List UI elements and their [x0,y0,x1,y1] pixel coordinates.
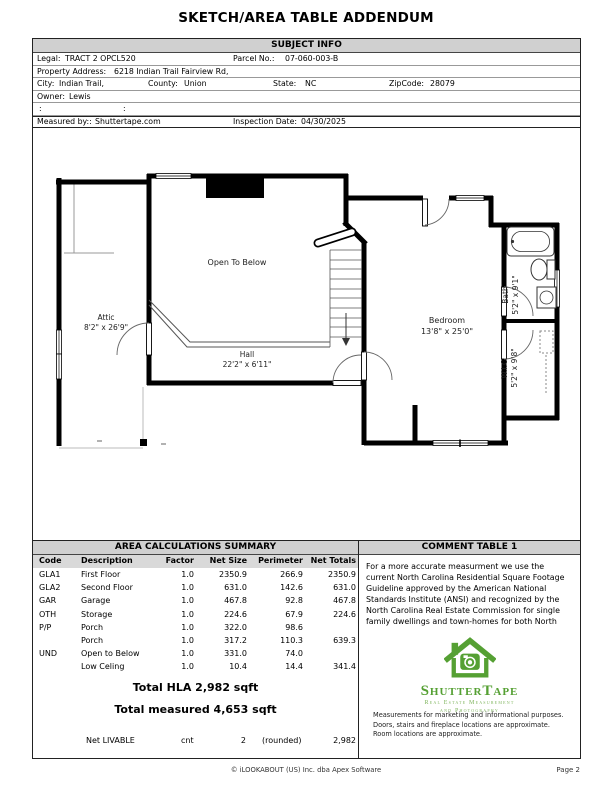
area-calculations-table: AREA CALCULATIONS SUMMARY Code Descripti… [32,540,359,759]
cell-factor: 1.0 [181,570,194,579]
net-livable-unit: cnt [181,736,194,745]
net-livable-label: Net LIVABLE [86,736,135,745]
table-row: OTH Storage 1.0 224.6 67.9 224.6 [33,609,358,622]
room-dims-bath: 5'2" x 9'1" [511,275,520,314]
state-label: State: [273,78,296,90]
room-label-bath: Bath [501,286,510,304]
net-livable-count: 2 [241,736,246,745]
room-label-bedroom: Bedroom [429,316,465,325]
windows [57,174,560,446]
cell-description: Storage [81,610,112,619]
cell-description: Porch [81,623,103,632]
bedroom-side-door-arc [364,352,392,380]
cell-perimeter: 92.8 [285,596,303,605]
wall-post [140,439,147,446]
col-description: Description [81,556,133,565]
attic-kneewall-lines [64,183,114,253]
hall-door-panel [333,381,361,386]
bedroom-top-door-panel [423,199,428,226]
room-label-hall: Hall [240,350,254,359]
cell-perimeter: 74.0 [285,649,303,658]
county-label: County: [148,78,178,90]
room-dims-bedroom: 13'8" x 25'0" [421,327,473,336]
cell-factor: 1.0 [181,583,194,592]
city-label: City: [37,78,54,90]
blank-colon-1: : [39,103,42,115]
cell-perimeter: 266.9 [280,570,303,579]
parcel-value: 07-060-003-B [285,53,338,65]
railing [149,300,330,347]
col-code: Code [39,556,62,565]
room-label-attic: Attic [97,313,114,322]
cell-net-totals: 467.8 [333,596,356,605]
cell-code: UND [39,649,57,658]
subject-row-legal: Legal: TRACT 2 OPCL520 Parcel No.: 07-06… [33,53,580,66]
table-row: GAR Garage 1.0 467.8 92.8 467.8 [33,595,358,608]
cell-net-size: 2350.9 [219,570,247,579]
cell-perimeter: 67.9 [285,610,303,619]
blank-colon-2: : [123,103,126,115]
zip-value: 28079 [430,78,455,90]
room-dims-hall: 22'2" x 6'11" [223,360,272,369]
tick-marks [97,441,166,444]
disclaimer-text: Measurements for marketing and informati… [373,711,573,740]
cell-factor: 1.0 [181,662,194,671]
cell-code: GLA1 [39,570,60,579]
cell-description: Porch [81,636,103,645]
cell-net-size: 322.0 [224,623,247,632]
sink-basin-icon [540,291,553,304]
room-label-open-to-below: Open To Below [208,258,267,267]
cell-code: P/P [39,623,51,632]
disclaimer-line: Room locations are approximate. [373,730,573,740]
col-factor: Factor [166,556,194,565]
wic-door-panel [502,330,507,359]
cell-net-size: 10.4 [229,662,247,671]
cell-net-totals: 341.4 [333,662,356,671]
wic-shelving [540,331,553,393]
table-row: GLA2 Second Floor 1.0 631.0 142.6 631.0 [33,582,358,595]
toilet-tank-icon [547,260,555,279]
cell-net-size: 224.6 [224,610,247,619]
col-net-size: Net Size [210,556,247,565]
owner-label: Owner: [37,91,65,103]
cell-factor: 1.0 [181,649,194,658]
cell-net-size: 317.2 [224,636,247,645]
subject-info-table: SUBJECT INFO Legal: TRACT 2 OPCL520 Parc… [32,38,581,128]
cell-code: OTH [39,610,56,619]
toilet-bowl-icon [531,259,547,280]
sketch-addendum-page: SKETCH/AREA TABLE ADDENDUM SUBJECT INFO … [0,0,612,792]
cell-description: Open to Below [81,649,140,658]
city-value: Indian Trail, [59,78,104,90]
window-mullions [59,176,557,443]
cell-net-size: 467.8 [224,596,247,605]
net-livable-value: 2,982 [333,736,356,745]
room-dims-attic: 8'2" x 26'9" [84,323,128,332]
chimney-block [206,178,264,198]
col-perimeter: Perimeter [258,556,303,565]
bedroom-top-door-arc [425,199,449,225]
total-measured: Total measured 4,653 sqft [33,703,358,716]
cell-net-size: 331.0 [224,649,247,658]
cell-perimeter: 98.6 [285,623,303,632]
legal-value: TRACT 2 OPCL520 [65,53,136,65]
bathtub-inner [512,232,550,252]
cell-factor: 1.0 [181,596,194,605]
owner-value: Lewis [69,91,91,103]
subject-row-owner: Owner: Lewis [33,91,580,104]
county-value: Union [184,78,207,90]
cell-code: GAR [39,596,56,605]
attic-door-panel [147,323,152,355]
zip-label: ZipCode: [389,78,424,90]
bedroom-side-door-panel [362,352,367,380]
page-title: SKETCH/AREA TABLE ADDENDUM [0,10,612,26]
cell-factor: 1.0 [181,636,194,645]
col-net-totals: Net Totals [311,556,356,565]
area-table-column-headers: Code Description Factor Net Size Perimet… [33,555,358,569]
doors [117,199,533,386]
walls [56,174,559,446]
cell-net-totals: 631.0 [333,583,356,592]
table-row: GLA1 First Floor 1.0 2350.9 266.9 2350.9 [33,569,358,582]
shuttertape-house-icon [444,637,496,679]
net-livable-note: (rounded) [262,736,301,745]
subject-info-header: SUBJECT INFO [33,39,580,53]
parcel-label: Parcel No.: [233,53,274,65]
comment-table: COMMENT TABLE 1 For a more accurate meas… [358,540,581,759]
subject-row-blank: : : [33,103,580,116]
cell-net-totals: 2350.9 [328,570,356,579]
footer-page-number: Page 2 [556,766,580,774]
logo-brand-text: ShutterTape [359,683,580,700]
floor-plan-svg: Attic 8'2" x 26'9" Open To Below Hall 22… [33,117,580,540]
cell-perimeter: 14.4 [285,662,303,671]
cell-factor: 1.0 [181,623,194,632]
address-label: Property Address: [37,66,106,78]
subject-row-address: Property Address: 6218 Indian Trail Fair… [33,66,580,79]
table-row: P/P Porch 1.0 322.0 98.6 [33,622,358,635]
address-value: 6218 Indian Trail Fairview Rd, [114,66,228,78]
cell-description: First Floor [81,570,120,579]
table-row: UND Open to Below 1.0 331.0 74.0 [33,648,358,661]
area-table-header: AREA CALCULATIONS SUMMARY [33,541,358,555]
table-row: Porch 1.0 317.2 110.3 639.3 [33,635,358,648]
floor-plan-sketch: Attic 8'2" x 26'9" Open To Below Hall 22… [32,116,581,541]
comment-table-header: COMMENT TABLE 1 [359,541,580,555]
cell-description: Low Celing [81,662,124,671]
disclaimer-line: Measurements for marketing and informati… [373,711,573,721]
cell-factor: 1.0 [181,610,194,619]
cell-description: Garage [81,596,110,605]
hall-door-arc [333,355,361,383]
logo-tagline-1: Real Estate Measurement [359,700,580,708]
cell-perimeter: 142.6 [280,583,303,592]
cell-net-totals: 639.3 [333,636,356,645]
disclaimer-line: Doors, stairs and fireplace locations ar… [373,721,573,731]
net-livable-row: Net LIVABLE cnt 2 (rounded) 2,982 [33,735,358,748]
total-hla: Total HLA 2,982 sqft [33,681,358,694]
stair-arrow-head [342,338,350,346]
room-dims-wic: 5'2" x 9'8" [510,348,519,387]
shuttertape-logo: ShutterTape Real Estate Measurement and … [359,637,580,715]
legal-label: Legal: [37,53,61,65]
comment-text: For a more accurate measurment we use th… [359,555,580,627]
tub-faucet-icon [511,240,514,243]
cell-perimeter: 110.3 [280,636,303,645]
cell-net-size: 631.0 [224,583,247,592]
footer-copyright: © iLOOKABOUT (US) Inc. dba Apex Software [0,766,612,774]
room-label-wic: W.I.C. [500,357,509,378]
faint-lower-outline [59,387,143,448]
state-value: NC [305,78,316,90]
cell-net-totals: 224.6 [333,610,356,619]
cell-description: Second Floor [81,583,133,592]
cell-code: GLA2 [39,583,60,592]
table-row: Low Celing 1.0 10.4 14.4 341.4 [33,661,358,674]
subject-row-city: City: Indian Trail, County: Union State:… [33,78,580,91]
